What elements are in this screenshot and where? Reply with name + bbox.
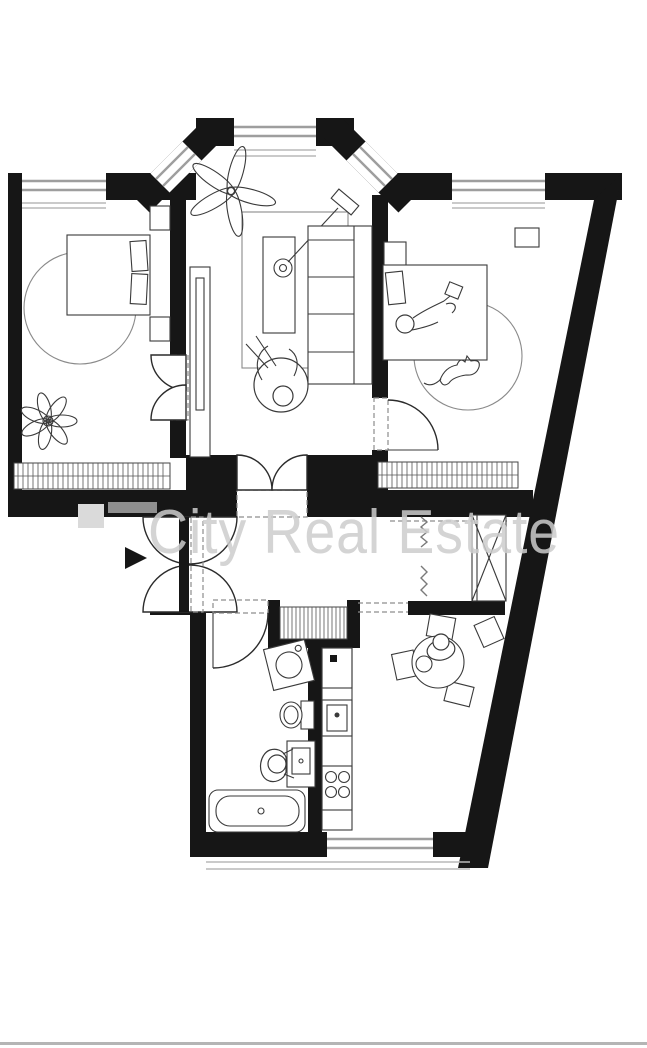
- kitchen-furniture: [322, 648, 352, 830]
- nightstand-icon: [150, 317, 170, 341]
- kitchen-counter-icon: [322, 648, 352, 830]
- bathtub-icon: [209, 790, 305, 832]
- nightstand-icon: [150, 206, 170, 230]
- coffee-table-icon: [263, 237, 295, 333]
- radiator-bedroom-right: [378, 462, 518, 488]
- radiator-niche-kitchen: [280, 607, 347, 639]
- pillow-icon: [130, 240, 148, 271]
- watermark-text: City Real Estate: [148, 498, 560, 567]
- washbasin-icon: [287, 741, 315, 787]
- nightstand-icon: [384, 242, 406, 266]
- window-bedroom-right: [452, 173, 545, 200]
- watermark: City Real Estate: [78, 498, 560, 567]
- window-bay-top: [234, 118, 316, 146]
- watermark-logo-light: [78, 504, 104, 528]
- wardrobe-shelf-icon: [190, 267, 210, 457]
- toilet-icon: [280, 701, 314, 729]
- window-bedroom-left: [22, 173, 106, 200]
- window-kitchen-bottom: [327, 832, 433, 857]
- bottom-divider-bar: [0, 1042, 647, 1045]
- radiator-bedroom-left: [14, 463, 170, 489]
- floor-plan-svg: City Real Estate: [0, 0, 647, 1048]
- pillow-icon: [385, 271, 405, 305]
- sofa-icon: [308, 226, 372, 384]
- floor-plan-image: City Real Estate: [0, 0, 647, 1048]
- wall-shelf-icon: [515, 228, 539, 247]
- pillow-icon: [130, 274, 148, 305]
